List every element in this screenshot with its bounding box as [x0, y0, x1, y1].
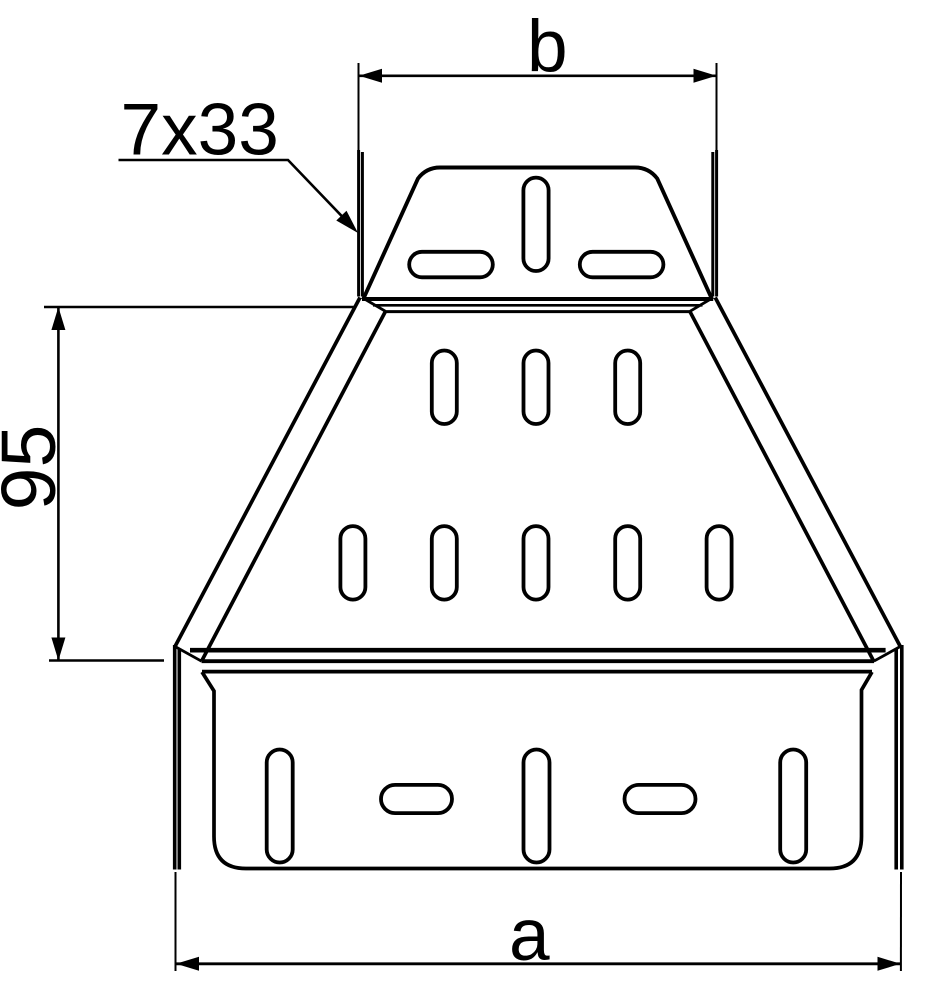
svg-text:7x33: 7x33: [121, 90, 279, 171]
svg-text:95: 95: [0, 425, 72, 511]
